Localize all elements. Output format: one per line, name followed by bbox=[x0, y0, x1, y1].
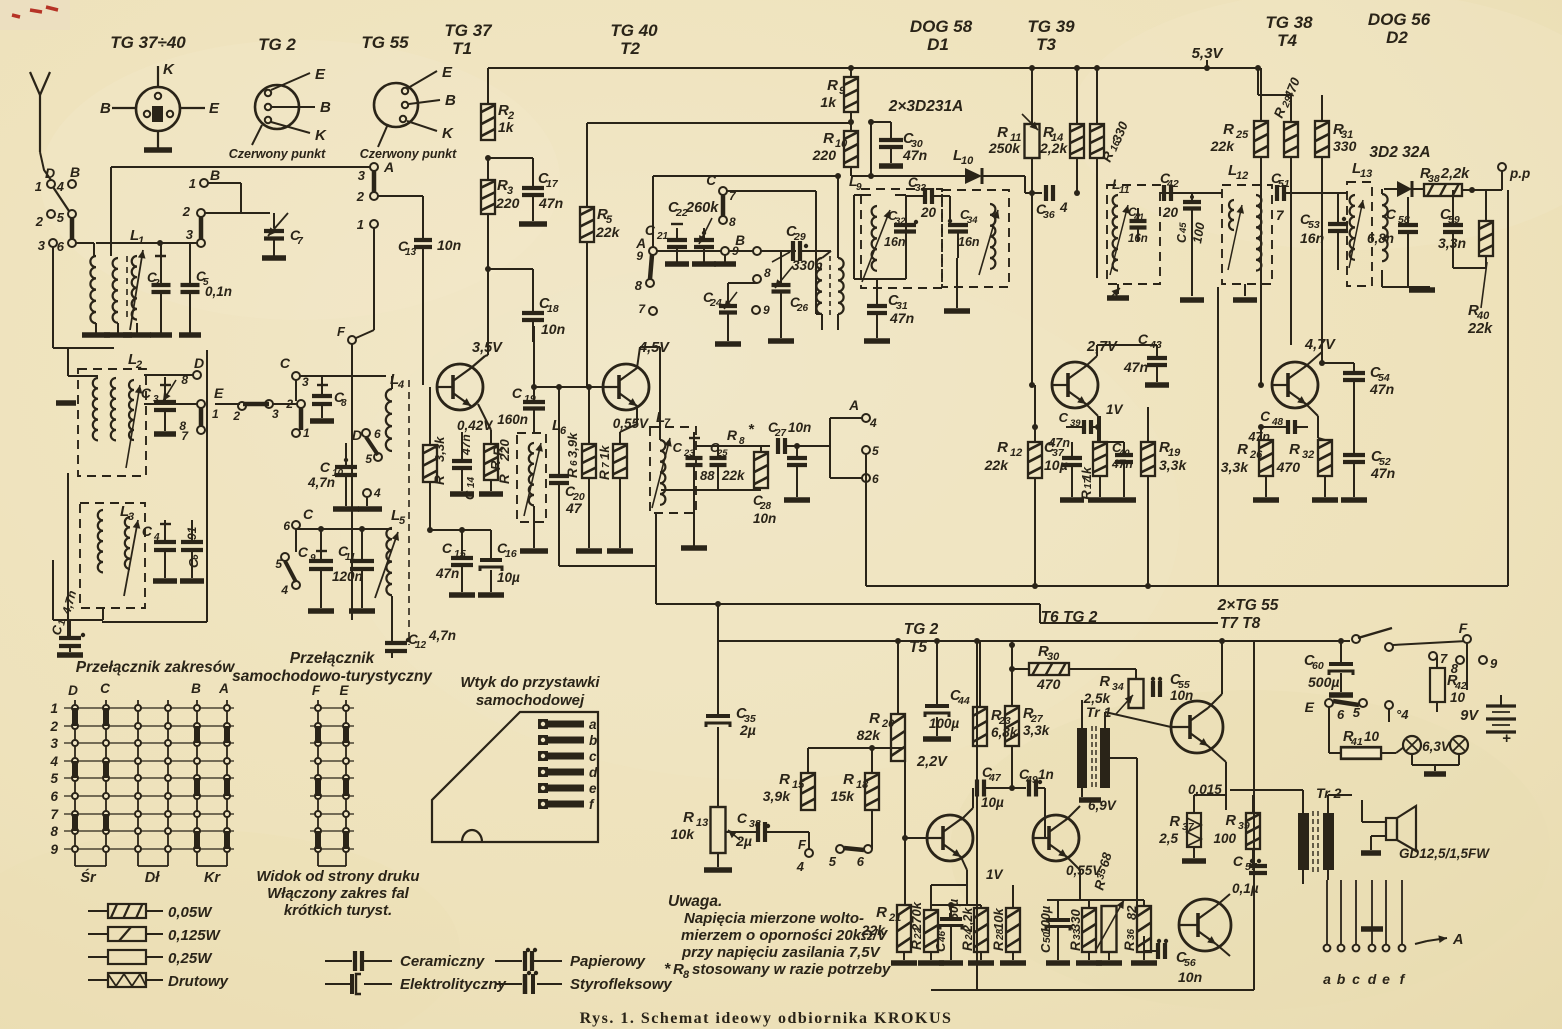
svg-text:TG 39: TG 39 bbox=[1027, 17, 1075, 36]
svg-text:DOG 56: DOG 56 bbox=[1368, 10, 1431, 29]
svg-text:3: 3 bbox=[302, 375, 309, 389]
svg-text:0,125W: 0,125W bbox=[168, 927, 222, 944]
svg-text:4: 4 bbox=[280, 583, 288, 597]
svg-text:T7 T8: T7 T8 bbox=[1220, 615, 1261, 632]
svg-text:A: A bbox=[383, 159, 394, 175]
svg-text:B: B bbox=[445, 92, 456, 109]
svg-text:10n: 10n bbox=[1178, 969, 1202, 985]
svg-text:C: C bbox=[1059, 410, 1069, 425]
svg-text:6: 6 bbox=[569, 460, 580, 466]
svg-text:30: 30 bbox=[1047, 651, 1060, 663]
svg-text:8: 8 bbox=[50, 824, 58, 839]
svg-text:38: 38 bbox=[1428, 173, 1440, 185]
svg-text:47n: 47n bbox=[889, 310, 914, 326]
svg-text:2: 2 bbox=[49, 719, 58, 734]
svg-text:3: 3 bbox=[358, 168, 366, 183]
svg-text:3,3k: 3,3k bbox=[1023, 723, 1051, 738]
svg-text:C: C bbox=[280, 355, 291, 371]
svg-text:d: d bbox=[589, 765, 598, 780]
svg-text:22k: 22k bbox=[595, 224, 621, 240]
svg-text:0,25W: 0,25W bbox=[168, 950, 213, 967]
svg-text:8: 8 bbox=[739, 436, 745, 447]
svg-text:3,9k: 3,9k bbox=[763, 788, 791, 804]
svg-text:B: B bbox=[210, 167, 220, 183]
svg-text:R: R bbox=[683, 809, 694, 826]
svg-text:R: R bbox=[497, 474, 512, 484]
svg-text:R: R bbox=[869, 710, 880, 727]
svg-text:470: 470 bbox=[1276, 459, 1301, 475]
svg-text:F: F bbox=[312, 683, 321, 698]
svg-text:3,9k: 3,9k bbox=[565, 432, 580, 458]
svg-text:2: 2 bbox=[35, 214, 44, 229]
svg-text:TG 37: TG 37 bbox=[444, 21, 493, 40]
svg-text:260k: 260k bbox=[685, 200, 719, 216]
svg-text:C: C bbox=[100, 681, 110, 696]
svg-text:A: A bbox=[848, 398, 859, 413]
svg-text:29: 29 bbox=[793, 231, 806, 243]
svg-text:3: 3 bbox=[272, 407, 279, 421]
svg-text:1k: 1k bbox=[498, 119, 515, 135]
svg-text:46: 46 bbox=[937, 930, 948, 943]
svg-text:4: 4 bbox=[796, 859, 805, 874]
svg-text:TG 38: TG 38 bbox=[1265, 13, 1313, 32]
svg-text:470: 470 bbox=[1036, 676, 1061, 692]
svg-text:2: 2 bbox=[356, 189, 365, 204]
svg-text:10µ: 10µ bbox=[1044, 457, 1068, 473]
svg-text:36: 36 bbox=[1126, 928, 1137, 940]
svg-text:D: D bbox=[352, 427, 362, 443]
svg-text:Papierowy: Papierowy bbox=[570, 953, 646, 970]
svg-text:°4: °4 bbox=[1396, 707, 1409, 722]
svg-text:T3: T3 bbox=[1036, 35, 1056, 54]
svg-text:C: C bbox=[512, 385, 523, 401]
svg-text:R: R bbox=[823, 130, 834, 147]
svg-text:10µ: 10µ bbox=[981, 795, 1004, 810]
svg-text:C: C bbox=[298, 544, 309, 560]
svg-text:E: E bbox=[1305, 699, 1315, 715]
svg-text:R: R bbox=[1100, 674, 1111, 690]
svg-text:R: R bbox=[727, 427, 738, 443]
svg-text:12: 12 bbox=[415, 640, 427, 651]
svg-text:b: b bbox=[1337, 971, 1346, 987]
svg-text:F: F bbox=[1459, 620, 1468, 636]
svg-text:8: 8 bbox=[683, 969, 690, 981]
svg-text:7: 7 bbox=[1440, 651, 1448, 666]
svg-text:Widok od strony druku: Widok od strony druku bbox=[256, 868, 419, 885]
svg-text:45: 45 bbox=[1178, 222, 1189, 234]
svg-text:36: 36 bbox=[1043, 209, 1055, 221]
svg-text:1k: 1k bbox=[1080, 466, 1094, 481]
svg-text:82k: 82k bbox=[857, 727, 882, 743]
svg-text:B: B bbox=[320, 99, 331, 116]
svg-text:24: 24 bbox=[709, 297, 722, 309]
svg-text:9: 9 bbox=[50, 842, 58, 857]
svg-text:47n: 47n bbox=[1369, 381, 1394, 397]
svg-text:1n: 1n bbox=[1038, 767, 1054, 782]
svg-text:2×TG 55: 2×TG 55 bbox=[1217, 597, 1279, 614]
svg-text:Rys. 1. Schemat ideowy odbi: Rys. 1. Schemat ideowy odbiornika KROKUS bbox=[580, 1010, 953, 1027]
svg-text:1V: 1V bbox=[1106, 402, 1124, 417]
svg-text:Napięcia mierzone wolto-: Napięcia mierzone wolto- bbox=[684, 910, 864, 927]
svg-text:49: 49 bbox=[1025, 774, 1038, 786]
svg-text:D: D bbox=[68, 683, 78, 698]
svg-text:R: R bbox=[909, 940, 924, 950]
svg-text:+: + bbox=[1502, 730, 1511, 747]
svg-text:6: 6 bbox=[57, 239, 65, 254]
svg-text:2µ: 2µ bbox=[735, 833, 752, 849]
svg-text:b: b bbox=[589, 733, 597, 748]
svg-text:1: 1 bbox=[138, 235, 144, 247]
svg-text:22k: 22k bbox=[721, 468, 746, 483]
svg-text:przy napięciu zasilania 7,5V: przy napięciu zasilania 7,5V bbox=[681, 944, 882, 961]
svg-text:39: 39 bbox=[1238, 820, 1250, 832]
svg-text:T2: T2 bbox=[620, 39, 640, 58]
svg-text:0,1µ: 0,1µ bbox=[1232, 881, 1259, 896]
svg-text:8: 8 bbox=[635, 278, 643, 293]
svg-text:330: 330 bbox=[1068, 909, 1083, 931]
svg-text:47: 47 bbox=[988, 772, 1002, 784]
svg-text:D2: D2 bbox=[1386, 28, 1408, 47]
svg-text:B: B bbox=[191, 681, 201, 696]
svg-text:2,2k: 2,2k bbox=[1039, 140, 1068, 156]
svg-text:Czerwony punkt: Czerwony punkt bbox=[229, 147, 326, 161]
svg-text:5: 5 bbox=[275, 557, 282, 571]
svg-text:3: 3 bbox=[50, 736, 58, 751]
svg-text:37: 37 bbox=[1182, 821, 1195, 833]
svg-text:15: 15 bbox=[792, 779, 805, 791]
svg-text:47n: 47n bbox=[1123, 359, 1148, 375]
svg-text:C: C bbox=[303, 506, 314, 522]
svg-text:59: 59 bbox=[1448, 214, 1460, 226]
svg-text:33: 33 bbox=[915, 183, 927, 194]
svg-text:47n: 47n bbox=[538, 195, 563, 211]
svg-text:47n: 47n bbox=[435, 566, 459, 581]
svg-text:C: C bbox=[1260, 409, 1270, 424]
svg-text:C: C bbox=[442, 540, 453, 556]
svg-text:R: R bbox=[1237, 441, 1248, 458]
svg-text:10n: 10n bbox=[541, 321, 565, 337]
svg-text:2µ: 2µ bbox=[739, 722, 756, 738]
svg-text:Włączony zakres fal: Włączony zakres fal bbox=[267, 885, 410, 902]
svg-text:2: 2 bbox=[232, 409, 240, 423]
svg-text:6,8n: 6,8n bbox=[1367, 231, 1394, 246]
svg-text:15k: 15k bbox=[831, 788, 856, 804]
svg-text:Czerwony punkt: Czerwony punkt bbox=[360, 147, 457, 161]
svg-text:1V: 1V bbox=[986, 867, 1004, 882]
svg-text:Śr: Śr bbox=[80, 868, 97, 886]
svg-text:10k: 10k bbox=[671, 826, 696, 842]
svg-text:10µ: 10µ bbox=[497, 570, 520, 585]
svg-text:330: 330 bbox=[1333, 138, 1357, 154]
svg-text:18: 18 bbox=[547, 303, 559, 315]
svg-text:100: 100 bbox=[1213, 831, 1236, 846]
svg-text:32: 32 bbox=[895, 216, 906, 227]
svg-text:a: a bbox=[1323, 971, 1331, 987]
svg-text:E: E bbox=[315, 66, 326, 83]
svg-text:R: R bbox=[960, 941, 975, 951]
svg-text:stosowany w razie potrzeby: stosowany w razie potrzeby bbox=[692, 961, 891, 978]
svg-text:9: 9 bbox=[310, 553, 316, 564]
svg-text:100µ: 100µ bbox=[1039, 906, 1053, 934]
svg-text:82: 82 bbox=[1124, 905, 1139, 920]
svg-text:4,7V: 4,7V bbox=[1304, 337, 1336, 353]
svg-text:4,7n: 4,7n bbox=[428, 628, 456, 643]
svg-text:4: 4 bbox=[397, 379, 404, 391]
svg-text:GD12,5/1,5FW: GD12,5/1,5FW bbox=[1399, 846, 1490, 861]
svg-text:*: * bbox=[664, 961, 671, 978]
svg-text:16n: 16n bbox=[1128, 233, 1148, 245]
svg-text:T1: T1 bbox=[452, 39, 472, 58]
svg-text:27: 27 bbox=[774, 428, 787, 439]
svg-text:TG 2: TG 2 bbox=[258, 35, 296, 54]
svg-text:B: B bbox=[100, 100, 111, 117]
svg-text:26: 26 bbox=[1249, 449, 1263, 461]
svg-text:56: 56 bbox=[1184, 957, 1196, 969]
svg-text:0,55V: 0,55V bbox=[613, 416, 649, 431]
svg-text:A: A bbox=[218, 681, 229, 696]
svg-text:C: C bbox=[933, 942, 948, 952]
svg-text:19: 19 bbox=[524, 393, 536, 405]
svg-text:TG 55: TG 55 bbox=[361, 33, 409, 52]
svg-text:Elektrolityczny: Elektrolityczny bbox=[400, 976, 507, 993]
svg-text:1: 1 bbox=[50, 701, 58, 716]
svg-text:5: 5 bbox=[57, 210, 65, 225]
svg-text:44: 44 bbox=[957, 695, 970, 707]
svg-text:47n: 47n bbox=[459, 434, 473, 456]
svg-text:16: 16 bbox=[505, 548, 517, 560]
svg-text:250k: 250k bbox=[988, 140, 1021, 156]
svg-text:10k: 10k bbox=[991, 908, 1006, 930]
svg-text:5: 5 bbox=[1353, 705, 1361, 720]
svg-text:13: 13 bbox=[696, 817, 708, 829]
svg-text:C: C bbox=[141, 385, 152, 401]
svg-text:K: K bbox=[442, 125, 454, 142]
svg-text:26: 26 bbox=[796, 303, 809, 314]
svg-text:6: 6 bbox=[857, 854, 865, 869]
svg-text:Uwaga.: Uwaga. bbox=[668, 893, 722, 910]
svg-text:D: D bbox=[45, 165, 55, 181]
svg-text:1k: 1k bbox=[597, 445, 612, 460]
svg-text:10: 10 bbox=[961, 155, 974, 167]
svg-text:10: 10 bbox=[835, 138, 848, 150]
svg-text:9: 9 bbox=[763, 303, 770, 317]
svg-text:C: C bbox=[142, 523, 153, 539]
svg-text:K: K bbox=[163, 61, 175, 78]
svg-text:samochodowej: samochodowej bbox=[476, 692, 585, 709]
svg-text:500µ: 500µ bbox=[1308, 674, 1339, 690]
svg-text:e: e bbox=[1382, 971, 1390, 987]
svg-text:34: 34 bbox=[967, 215, 978, 226]
svg-text:TG 2: TG 2 bbox=[904, 621, 939, 638]
svg-text:B: B bbox=[735, 233, 745, 248]
svg-text:58: 58 bbox=[1398, 214, 1410, 226]
svg-text:91: 91 bbox=[185, 526, 199, 540]
svg-text:3,3k: 3,3k bbox=[432, 436, 447, 462]
svg-text:R: R bbox=[991, 941, 1006, 951]
svg-text:R: R bbox=[597, 470, 612, 480]
svg-text:6: 6 bbox=[872, 472, 879, 486]
svg-text:1k: 1k bbox=[820, 94, 837, 110]
svg-text:88: 88 bbox=[700, 468, 715, 483]
svg-text:20: 20 bbox=[1162, 205, 1179, 220]
svg-text:7: 7 bbox=[601, 462, 612, 468]
svg-text:22k: 22k bbox=[1467, 321, 1493, 337]
svg-text:D1: D1 bbox=[927, 35, 949, 54]
svg-text:39: 39 bbox=[1070, 418, 1081, 429]
svg-text:T4: T4 bbox=[1277, 31, 1297, 50]
svg-text:48: 48 bbox=[1271, 417, 1284, 428]
svg-text:R: R bbox=[997, 124, 1008, 141]
svg-text:0,1n: 0,1n bbox=[205, 284, 232, 299]
svg-text:12: 12 bbox=[1010, 447, 1022, 459]
svg-text:R: R bbox=[997, 439, 1008, 456]
svg-text:R: R bbox=[1223, 121, 1234, 138]
svg-text:mierzem o oporności 20kΩ/V: mierzem o oporności 20kΩ/V bbox=[681, 927, 889, 944]
svg-text:17: 17 bbox=[546, 178, 559, 190]
svg-text:220: 220 bbox=[495, 195, 520, 211]
svg-text:Wtyk do przystawki: Wtyk do przystawki bbox=[460, 674, 600, 691]
svg-text:C: C bbox=[1138, 331, 1149, 347]
svg-text:F: F bbox=[337, 324, 346, 339]
svg-text:120n: 120n bbox=[332, 569, 363, 584]
svg-text:9: 9 bbox=[1490, 656, 1498, 671]
svg-text:21: 21 bbox=[888, 912, 901, 924]
svg-text:c: c bbox=[1352, 971, 1360, 987]
svg-text:Styrofleksowy: Styrofleksowy bbox=[570, 976, 672, 993]
svg-text:2: 2 bbox=[153, 278, 160, 289]
svg-text:38: 38 bbox=[749, 818, 761, 830]
svg-text:9V: 9V bbox=[1460, 708, 1479, 724]
svg-text:43: 43 bbox=[1149, 339, 1162, 351]
svg-text:F: F bbox=[798, 837, 807, 852]
svg-text:R: R bbox=[1122, 941, 1137, 951]
svg-text:Dł: Dł bbox=[145, 870, 160, 886]
svg-text:C: C bbox=[1233, 853, 1244, 869]
svg-text:1: 1 bbox=[212, 407, 219, 421]
svg-text:50µ: 50µ bbox=[947, 899, 961, 920]
svg-text:A: A bbox=[1452, 932, 1463, 948]
svg-text:22k: 22k bbox=[1210, 138, 1236, 154]
svg-text:a: a bbox=[589, 717, 597, 732]
svg-text:R: R bbox=[876, 904, 887, 921]
svg-text:9: 9 bbox=[636, 249, 643, 263]
svg-text:3,5V: 3,5V bbox=[472, 340, 503, 356]
svg-text:1: 1 bbox=[189, 176, 196, 191]
svg-text:C: C bbox=[706, 173, 716, 188]
svg-text:TG 40: TG 40 bbox=[610, 21, 658, 40]
svg-text:4,7n: 4,7n bbox=[307, 475, 335, 490]
svg-text:6,3V: 6,3V bbox=[1422, 739, 1451, 754]
svg-text:3: 3 bbox=[38, 238, 46, 253]
svg-text:4: 4 bbox=[1059, 200, 1068, 215]
svg-text:K: K bbox=[315, 127, 327, 144]
svg-text:E: E bbox=[214, 385, 224, 401]
svg-text:21: 21 bbox=[656, 231, 669, 242]
svg-text:9: 9 bbox=[856, 182, 862, 193]
svg-text:12: 12 bbox=[1236, 170, 1248, 182]
svg-text:6: 6 bbox=[50, 789, 58, 804]
svg-text:2,7V: 2,7V bbox=[1086, 339, 1118, 355]
svg-text:47: 47 bbox=[565, 500, 583, 516]
svg-text:E: E bbox=[339, 683, 349, 698]
svg-text:5: 5 bbox=[365, 452, 372, 466]
svg-text:E: E bbox=[209, 100, 220, 117]
svg-text:100µ: 100µ bbox=[929, 716, 960, 731]
svg-text:220: 220 bbox=[812, 147, 837, 163]
svg-text:42: 42 bbox=[1166, 178, 1179, 190]
svg-text:4: 4 bbox=[153, 532, 160, 543]
svg-text:22k: 22k bbox=[984, 457, 1010, 473]
svg-text:2,5: 2,5 bbox=[1158, 831, 1178, 846]
svg-text:8: 8 bbox=[729, 215, 736, 229]
svg-text:R: R bbox=[827, 77, 838, 94]
svg-text:D: D bbox=[194, 355, 204, 371]
svg-text:220: 220 bbox=[497, 439, 512, 462]
svg-text:T6 TG 2: T6 TG 2 bbox=[1041, 609, 1098, 626]
svg-text:8: 8 bbox=[764, 266, 771, 280]
svg-text:47n: 47n bbox=[1370, 465, 1395, 481]
svg-text:DOG 58: DOG 58 bbox=[910, 17, 973, 36]
svg-text:C: C bbox=[1386, 206, 1397, 222]
svg-text:23: 23 bbox=[683, 448, 695, 459]
svg-text:60: 60 bbox=[1312, 660, 1324, 672]
svg-text:0,05W: 0,05W bbox=[168, 904, 213, 921]
svg-text:6: 6 bbox=[374, 427, 381, 441]
svg-text:51: 51 bbox=[1278, 178, 1290, 190]
svg-text:47n: 47n bbox=[902, 147, 927, 163]
svg-text:2,2k: 2,2k bbox=[961, 907, 975, 933]
svg-text:16n: 16n bbox=[958, 235, 980, 249]
svg-text:3: 3 bbox=[186, 227, 194, 242]
svg-text:C: C bbox=[737, 810, 748, 826]
svg-text:3,3k: 3,3k bbox=[1221, 459, 1249, 475]
svg-text:2×3D231A: 2×3D231A bbox=[888, 98, 964, 115]
svg-text:8: 8 bbox=[341, 398, 347, 409]
svg-text:TG 37÷40: TG 37÷40 bbox=[110, 33, 186, 52]
svg-text:13: 13 bbox=[1360, 168, 1372, 180]
svg-text:6: 6 bbox=[190, 554, 201, 560]
svg-text:4: 4 bbox=[373, 486, 381, 500]
svg-text:R: R bbox=[565, 468, 580, 478]
svg-text:10: 10 bbox=[1450, 690, 1466, 705]
svg-text:2: 2 bbox=[182, 204, 191, 219]
svg-text:R: R bbox=[779, 771, 790, 788]
svg-text:2,2k: 2,2k bbox=[1440, 166, 1470, 182]
svg-text:R: R bbox=[1170, 814, 1181, 830]
svg-text:10n: 10n bbox=[437, 237, 461, 253]
svg-text:10n: 10n bbox=[753, 511, 776, 526]
svg-text:34: 34 bbox=[1112, 681, 1124, 693]
svg-text:5: 5 bbox=[829, 854, 837, 869]
svg-text:5: 5 bbox=[50, 771, 58, 786]
svg-text:C: C bbox=[673, 440, 683, 455]
svg-text:2,2V: 2,2V bbox=[916, 754, 948, 770]
svg-text:p.p: p.p bbox=[1509, 166, 1530, 181]
svg-text:16n: 16n bbox=[884, 235, 906, 249]
svg-text:C: C bbox=[320, 459, 331, 475]
svg-text:C: C bbox=[1038, 943, 1053, 953]
svg-text:25: 25 bbox=[716, 448, 728, 459]
svg-text:C: C bbox=[462, 490, 477, 500]
svg-text:47n: 47n bbox=[1111, 457, 1133, 471]
svg-text:6,9V: 6,9V bbox=[1088, 798, 1117, 813]
svg-text:1: 1 bbox=[357, 217, 364, 232]
svg-text:5: 5 bbox=[872, 444, 879, 458]
svg-text:6: 6 bbox=[283, 519, 290, 533]
svg-text:4: 4 bbox=[49, 754, 58, 769]
svg-text:1: 1 bbox=[35, 179, 42, 194]
svg-text:20: 20 bbox=[881, 718, 895, 730]
